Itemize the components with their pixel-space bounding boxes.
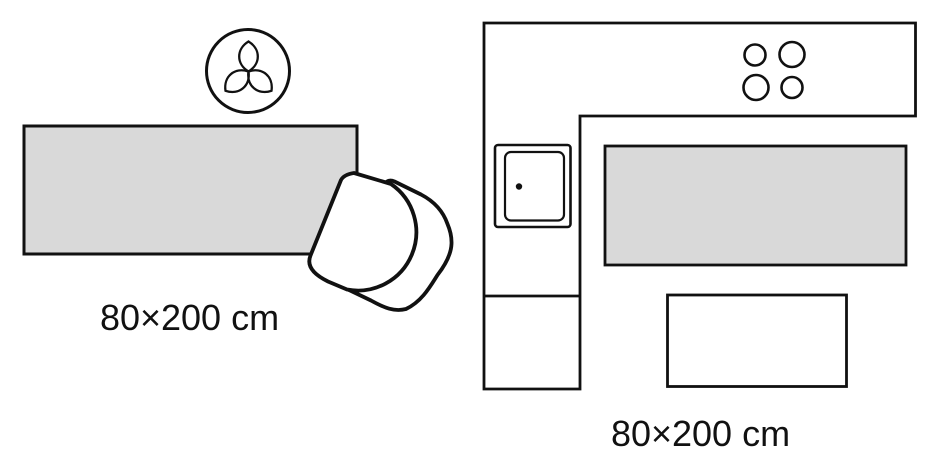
svg-text:80×200 cm: 80×200 cm bbox=[611, 413, 790, 454]
svg-text:80×200 cm: 80×200 cm bbox=[100, 297, 279, 338]
